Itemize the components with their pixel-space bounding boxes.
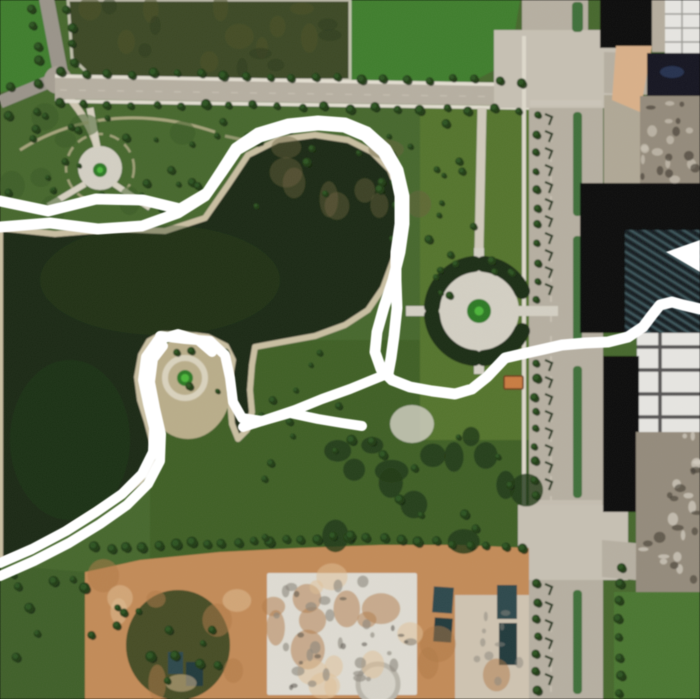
- satellite-map-view[interactable]: [0, 0, 700, 699]
- satellite-map-canvas[interactable]: [0, 0, 700, 699]
- image-grain: [0, 0, 700, 699]
